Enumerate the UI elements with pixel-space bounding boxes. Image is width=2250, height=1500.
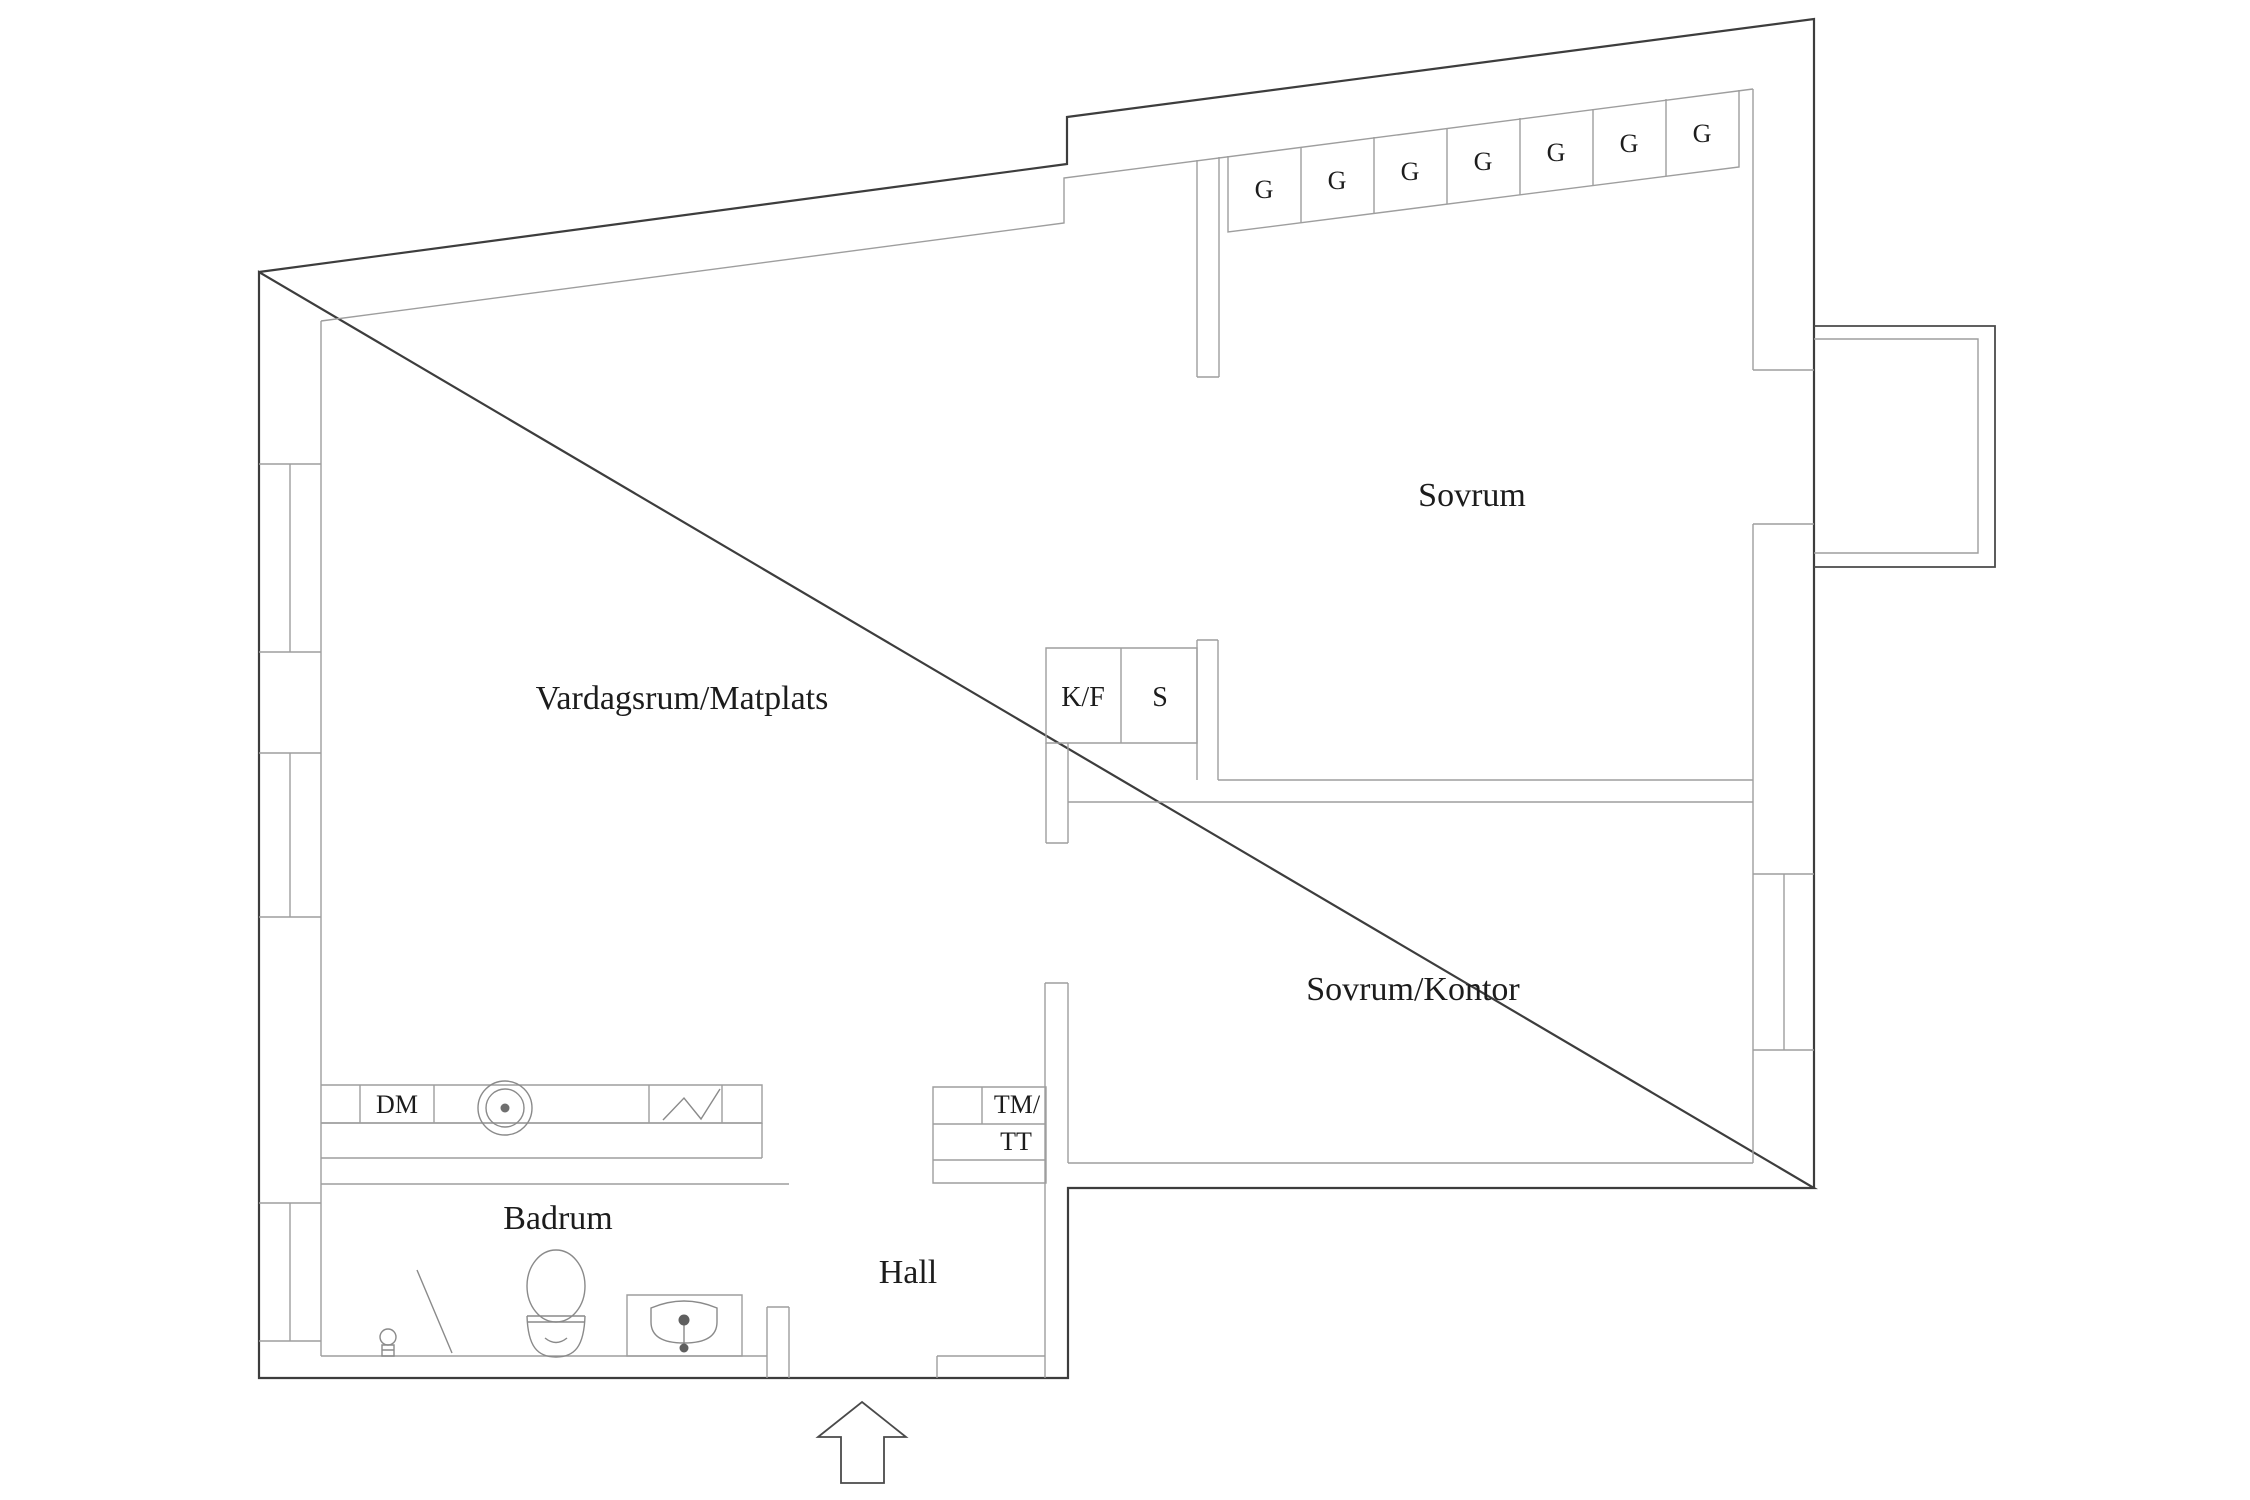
kitchen-counter	[321, 1123, 762, 1158]
washing-machine-label: TM/	[994, 1090, 1041, 1119]
room-labels: Vardagsrum/Matplats Sovrum Sovrum/Kontor…	[503, 477, 1526, 1291]
balcony	[1814, 326, 1995, 567]
fridge-freezer-unit: K/F S	[1046, 648, 1197, 743]
squeegee-icon	[417, 1270, 452, 1353]
entrance-arrow	[818, 1402, 906, 1483]
room-label-bedroom-office: Sovrum/Kontor	[1306, 971, 1520, 1008]
toilet-brush-icon	[380, 1329, 396, 1356]
kitchen-unit: DM	[321, 1081, 762, 1158]
wardrobe-row: G G G G G G G	[1228, 90, 1739, 232]
wardrobe-label: G	[1693, 119, 1712, 148]
hall-inner-bottom	[937, 1356, 1045, 1378]
window-icon	[259, 1203, 321, 1341]
laundry-unit: TM/ TT	[933, 1087, 1046, 1183]
room-label-bathroom: Badrum	[503, 1200, 613, 1237]
bedroom-left-wall-lower	[1197, 640, 1218, 780]
exterior-walls	[259, 19, 1814, 1378]
room-label-bedroom: Sovrum	[1418, 477, 1526, 514]
hall-office-divider	[1045, 983, 1068, 1378]
wardrobe-label: G	[1474, 147, 1493, 176]
window-icon	[259, 753, 321, 917]
wardrobe-label: G	[1328, 166, 1347, 195]
dishwasher-label: DM	[376, 1090, 418, 1119]
kitchen-divider	[1046, 743, 1068, 843]
bathroom-fixtures	[380, 1250, 742, 1357]
wardrobe-label: G	[1547, 138, 1566, 167]
wardrobe-label: G	[1620, 129, 1639, 158]
balcony-outer-rail	[1814, 326, 1995, 567]
round-sink-icon	[478, 1081, 532, 1135]
stove-zigzag-icon	[663, 1089, 720, 1120]
balcony-inner-rail	[1814, 339, 1978, 553]
room-label-hall: Hall	[879, 1254, 938, 1291]
wardrobe-label: G	[1401, 157, 1420, 186]
floor-plan: G G G G G G G K/F S DM TM/ TT	[0, 0, 2250, 1500]
toilet-icon	[527, 1250, 585, 1357]
window-icon	[259, 464, 321, 652]
outer-boundary	[259, 19, 1814, 1378]
room-label-living: Vardagsrum/Matplats	[536, 680, 829, 717]
wardrobe-label: G	[1255, 175, 1274, 204]
window-right-wall	[1753, 874, 1814, 1050]
fridge-freezer-label: K/F	[1061, 682, 1105, 713]
washbasin-icon	[627, 1295, 742, 1356]
balcony-door-jambs	[1753, 370, 1814, 524]
bedroom-left-wall-upper	[1197, 157, 1219, 377]
tumble-dryer-label: TT	[1000, 1127, 1032, 1156]
interior-walls	[321, 89, 1814, 1378]
inner-top-wall	[321, 89, 1753, 321]
pantry-label: S	[1152, 682, 1168, 713]
floor-plan-page: G G G G G G G K/F S DM TM/ TT	[0, 0, 2250, 1500]
window-icon	[1753, 874, 1814, 1050]
bedroom-office-divider	[1068, 780, 1753, 802]
windows-left-wall	[259, 464, 321, 1341]
